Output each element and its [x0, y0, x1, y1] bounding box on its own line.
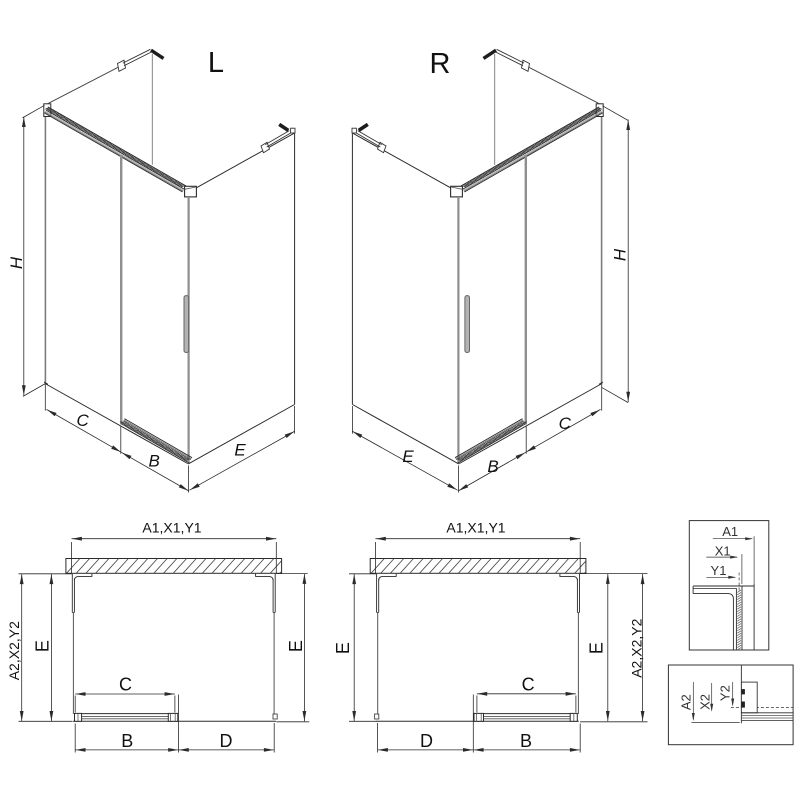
svg-text:A1,X1,Y1: A1,X1,Y1: [446, 520, 505, 536]
svg-text:H: H: [611, 248, 630, 261]
svg-text:E: E: [234, 441, 246, 460]
svg-text:C: C: [76, 411, 89, 430]
svg-text:C: C: [559, 414, 572, 433]
svg-text:D: D: [220, 731, 233, 751]
svg-text:A1: A1: [722, 524, 738, 539]
svg-text:C: C: [119, 675, 132, 695]
svg-text:E: E: [587, 642, 607, 654]
svg-text:A1,X1,Y1: A1,X1,Y1: [142, 520, 201, 536]
svg-text:B: B: [149, 452, 160, 471]
svg-text:X2: X2: [698, 694, 713, 710]
svg-text:A2: A2: [678, 694, 693, 710]
svg-text:E: E: [402, 447, 414, 466]
svg-text:H: H: [7, 256, 26, 269]
svg-text:C: C: [522, 674, 535, 694]
svg-text:D: D: [420, 731, 433, 751]
svg-text:E: E: [333, 642, 353, 654]
svg-text:B: B: [121, 731, 133, 751]
svg-text:Y1: Y1: [711, 563, 727, 578]
svg-text:Y2: Y2: [718, 685, 733, 701]
svg-text:A2,X2,Y2: A2,X2,Y2: [6, 621, 22, 680]
svg-text:B: B: [487, 457, 498, 476]
svg-text:X1: X1: [715, 543, 731, 558]
svg-text:E: E: [286, 640, 306, 652]
svg-text:E: E: [32, 640, 52, 652]
svg-text:B: B: [520, 731, 532, 751]
svg-text:L: L: [208, 47, 224, 79]
svg-text:A2,X2,Y2: A2,X2,Y2: [629, 618, 645, 677]
svg-text:R: R: [430, 48, 451, 80]
